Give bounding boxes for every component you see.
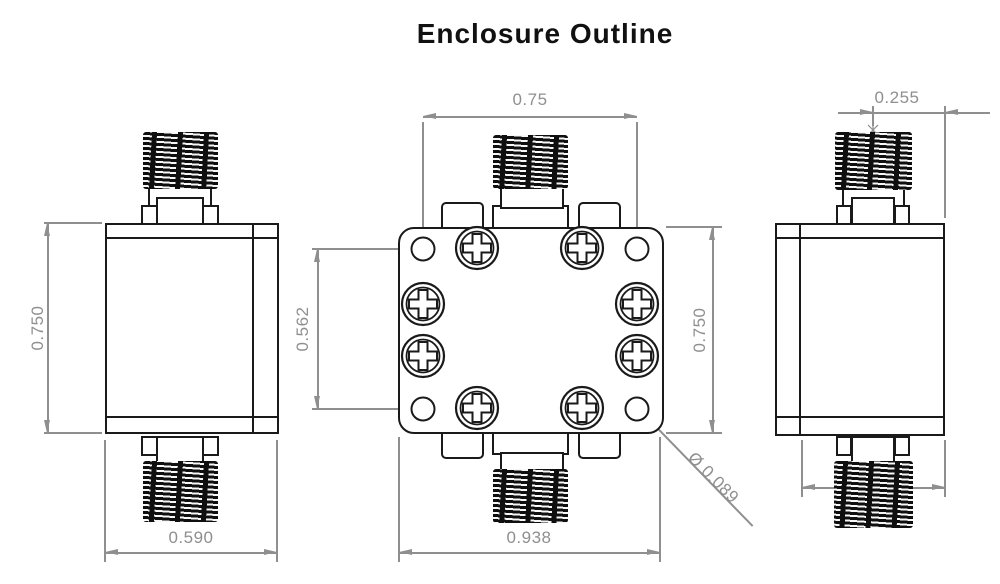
arrowhead-up-icon	[709, 227, 715, 240]
left-bottom-connector-thread-icon	[143, 461, 218, 522]
left-bottom-connector-ear-l	[141, 436, 158, 456]
phillips-screw-icon	[558, 384, 606, 432]
drawing-sheet: Enclosure Outline 0.750 0.590	[0, 0, 1000, 584]
left-view-step-line	[252, 225, 254, 432]
body-width-dim-text: 0.938	[494, 528, 564, 548]
left-bottom-connector-flange	[156, 436, 204, 463]
drawing-title: Enclosure Outline	[345, 18, 745, 50]
arrowhead-left-icon	[105, 549, 118, 555]
arrowhead-left-icon	[802, 484, 815, 490]
hole-spacing-h-dim-line	[423, 116, 637, 118]
arrowhead-right-icon	[860, 109, 873, 115]
arrowhead-left-icon	[399, 549, 412, 555]
left-height-ext-top	[44, 222, 102, 224]
offset-dim-text: 0.255	[862, 88, 932, 108]
corner-hole-icon	[409, 235, 437, 263]
body-width-ext-l	[398, 437, 400, 562]
phillips-screw-icon	[453, 224, 501, 272]
left-top-connector-flange	[156, 197, 204, 225]
bottom-connector-thread-icon	[493, 469, 568, 523]
phillips-screw-icon	[399, 332, 447, 380]
left-width-ext-l	[104, 440, 106, 562]
right-top-connector-ear-l	[836, 205, 852, 225]
right-view-lid-top-line	[777, 237, 943, 239]
right-top-connector-ear-r	[894, 205, 910, 225]
arrowhead-right-icon	[624, 113, 637, 119]
arrowhead-up-icon	[44, 223, 50, 236]
corner-hole-icon	[409, 395, 437, 423]
phillips-screw-icon	[558, 224, 606, 272]
arrowhead-up-icon	[314, 249, 320, 262]
corner-hole-icon	[623, 395, 651, 423]
phillips-screw-icon	[399, 280, 447, 328]
right-top-connector-flange	[851, 197, 895, 225]
corner-hole-icon	[623, 235, 651, 263]
hole-spacing-h-dim-text: 0.75	[495, 90, 565, 110]
arrowhead-down-icon	[314, 396, 320, 409]
left-height-dim-text: 0.750	[28, 296, 48, 360]
top-connector-neck	[500, 187, 564, 209]
left-top-connector-ear-l	[141, 205, 158, 225]
phillips-screw-icon	[613, 280, 661, 328]
phillips-screw-icon	[613, 332, 661, 380]
left-width-dim-text: 0.590	[156, 528, 226, 548]
arrowhead-left-icon	[945, 109, 958, 115]
left-height-ext-bottom	[44, 432, 102, 434]
arrowhead-right-icon	[932, 484, 945, 490]
right-bottom-connector-flange	[851, 436, 895, 463]
right-view-step-line	[799, 225, 801, 434]
left-width-ext-r	[276, 440, 278, 562]
arrowhead-left-icon	[423, 113, 436, 119]
right-view-lid-bottom-line	[777, 416, 943, 418]
hole-spacing-v-dim-text: 0.562	[293, 297, 313, 361]
right-bottom-connector-ear-r	[894, 436, 910, 456]
body-width-ext-r	[659, 437, 661, 562]
left-top-connector-ear-r	[202, 205, 219, 225]
hole-dia-dim-text: Ø 0.089	[674, 439, 752, 517]
phillips-screw-icon	[453, 384, 501, 432]
left-top-connector-thread-icon	[143, 132, 218, 189]
arrowhead-down-icon	[44, 420, 50, 433]
right-top-connector-thread-icon	[835, 132, 912, 190]
body-height-dim-line	[712, 227, 714, 433]
arrowhead-right-icon	[647, 549, 660, 555]
offset-ext-r	[944, 106, 946, 218]
bottom-connector-tab-l	[441, 432, 484, 459]
right-bottom-connector-ear-l	[836, 436, 852, 456]
top-connector-thread-icon	[493, 135, 568, 189]
body-height-dim-text: 0.750	[690, 298, 710, 362]
hole-spacing-v-dim-line	[317, 249, 319, 409]
left-bottom-connector-ear-r	[202, 436, 219, 456]
arrowhead-down-icon	[709, 420, 715, 433]
arrowhead-right-icon	[264, 549, 277, 555]
body-width-dim-line	[399, 552, 660, 554]
right-bottom-connector-thread-icon	[834, 461, 913, 528]
bottom-connector-tab-r	[578, 432, 621, 459]
left-width-dim-line	[105, 552, 277, 554]
